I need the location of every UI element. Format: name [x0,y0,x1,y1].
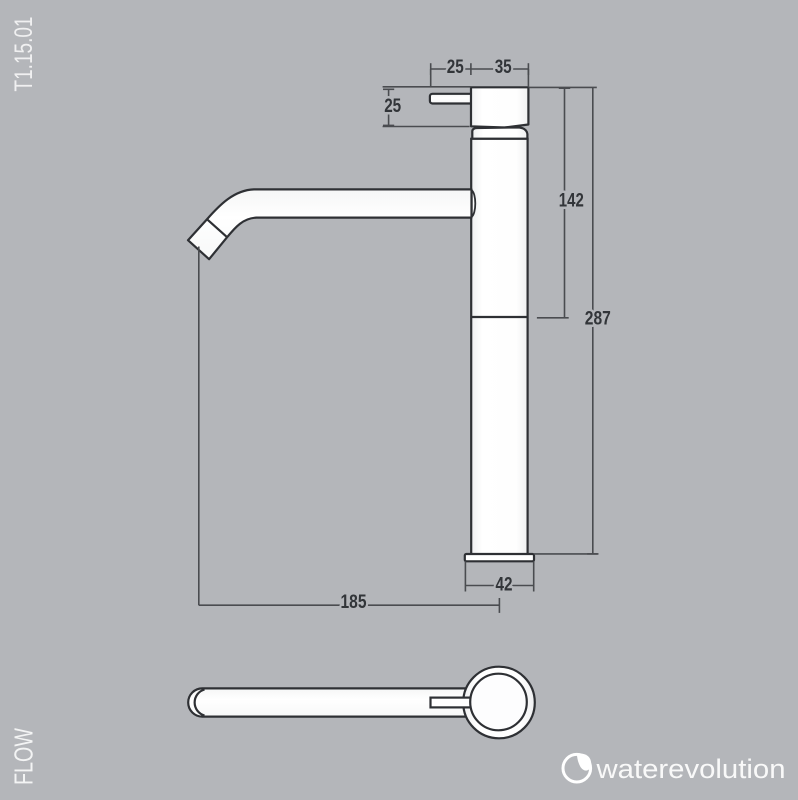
svg-text:35: 35 [495,57,512,78]
svg-text:185: 185 [341,592,367,613]
svg-text:waterevolution: waterevolution [595,754,785,784]
svg-text:25: 25 [447,57,464,78]
svg-text:142: 142 [559,191,584,212]
svg-text:T1.15.01: T1.15.01 [10,17,38,92]
svg-text:FLOW: FLOW [9,728,39,785]
svg-text:42: 42 [496,574,513,595]
svg-text:287: 287 [585,308,611,329]
svg-text:25: 25 [384,96,401,117]
